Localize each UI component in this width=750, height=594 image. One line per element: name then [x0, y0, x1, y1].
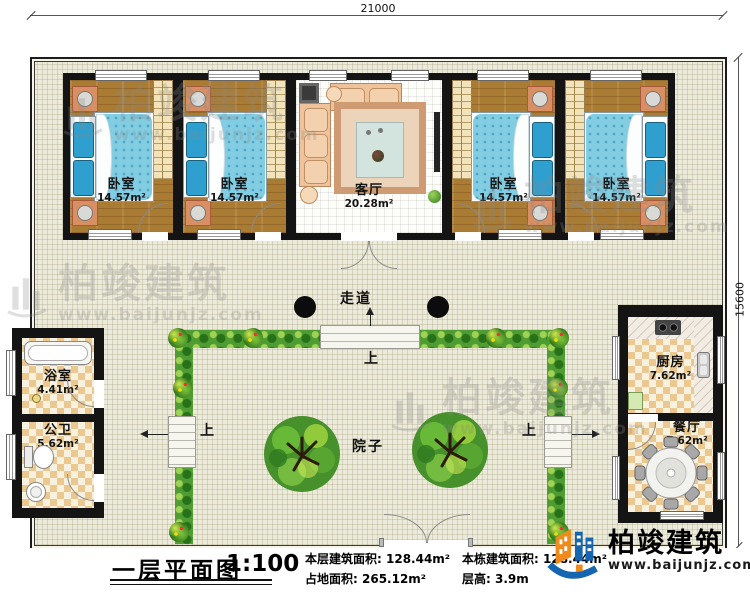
window [498, 229, 542, 240]
room-label: 卧室14.57m² [70, 178, 173, 204]
steps-east [544, 416, 572, 468]
window [309, 70, 347, 81]
flower-bush [549, 328, 569, 348]
up-label-north: 上 [364, 348, 378, 368]
up-label-east: 上 [522, 420, 536, 440]
floor-plan: 上 上 上 院子 走道 卧室14.57m² [0, 0, 750, 594]
window [6, 434, 16, 480]
plan-scale: 1:100 [226, 551, 299, 577]
nightstand [527, 86, 553, 112]
nightstand [72, 86, 98, 112]
door-opening [94, 380, 104, 408]
gate-post [468, 538, 473, 547]
wardrobe [565, 80, 585, 180]
brand-company-name: 柏竣建筑 [608, 530, 750, 557]
brand-logo: 柏竣建筑 www.baijunjz.com [544, 522, 750, 584]
up-label-west: 上 [200, 420, 214, 440]
arrow-line [147, 434, 168, 435]
dimension-height-label: 15600 [734, 272, 747, 328]
arrow-left-icon [140, 430, 148, 438]
courtyard-label: 院子 [352, 436, 384, 456]
door-opening [628, 414, 658, 422]
bathtub [24, 341, 92, 365]
door-opening [94, 474, 104, 502]
room-label: 客厅20.28m² [296, 184, 442, 210]
speaker [299, 83, 319, 103]
double-door-opening [341, 232, 397, 241]
nightstand [185, 86, 211, 112]
corridor-label: 走道 [340, 288, 372, 308]
room-label: 厨房7.62m² [628, 356, 713, 382]
room-label: 卧室14.57m² [565, 178, 668, 204]
toilet-tank [24, 446, 33, 468]
window [88, 229, 132, 240]
wardrobe [266, 80, 286, 180]
brand-website: www.baijunjz.com [608, 557, 750, 575]
title-underline [110, 579, 272, 581]
stat-floor-area: 本层建筑面积: 128.44m² [305, 550, 450, 567]
room-label: 卧室14.57m² [452, 178, 555, 204]
window [391, 70, 429, 81]
window [477, 70, 529, 81]
window [717, 452, 725, 500]
column [427, 296, 449, 318]
arrow-line [370, 314, 371, 326]
dimension-width-label: 21000 [350, 2, 406, 15]
room-label: 卧室14.57m² [183, 178, 286, 204]
dimension-line-top [30, 15, 723, 16]
door-opening [142, 232, 168, 241]
round-cushion [326, 86, 342, 102]
table-flowers [372, 150, 384, 162]
arrow-right-icon [592, 430, 600, 438]
steps-west [168, 416, 196, 468]
window [6, 350, 16, 396]
flower-bush [548, 378, 568, 398]
stove [655, 320, 681, 335]
window [208, 70, 260, 81]
window [612, 456, 620, 500]
window [660, 511, 704, 520]
flower-bush [486, 328, 506, 348]
cutting-board [628, 392, 643, 410]
sink [26, 482, 46, 502]
wardrobe [153, 80, 173, 180]
flower-bush [243, 328, 263, 348]
toilet-bowl [33, 445, 54, 469]
flower-bush [173, 378, 193, 398]
dining-table-set [634, 436, 708, 510]
title-underline [110, 584, 272, 585]
sofa-left [299, 103, 331, 187]
door-opening [568, 232, 594, 241]
column [294, 296, 316, 318]
brand-logo-icon [544, 522, 602, 584]
steps-north [320, 325, 420, 349]
stat-storey-height: 层高: 3.9m [462, 570, 529, 587]
door-opening [455, 232, 481, 241]
flower-bush [169, 522, 189, 542]
gate-post [379, 538, 384, 547]
door-opening [255, 232, 281, 241]
window [717, 336, 725, 384]
courtyard-tree [258, 410, 346, 498]
flower-bush [168, 328, 188, 348]
arrow-up-icon [366, 307, 374, 315]
window [95, 70, 147, 81]
cup [366, 130, 371, 135]
window [600, 229, 644, 240]
window [612, 336, 620, 380]
courtyard-tree [406, 406, 494, 494]
window [197, 229, 241, 240]
tv [434, 112, 440, 172]
cup [378, 128, 383, 133]
window [590, 70, 642, 81]
stat-land-area: 占地面积: 265.12m² [305, 570, 426, 587]
arrow-line [572, 434, 593, 435]
nightstand [640, 86, 666, 112]
wardrobe [452, 80, 472, 180]
